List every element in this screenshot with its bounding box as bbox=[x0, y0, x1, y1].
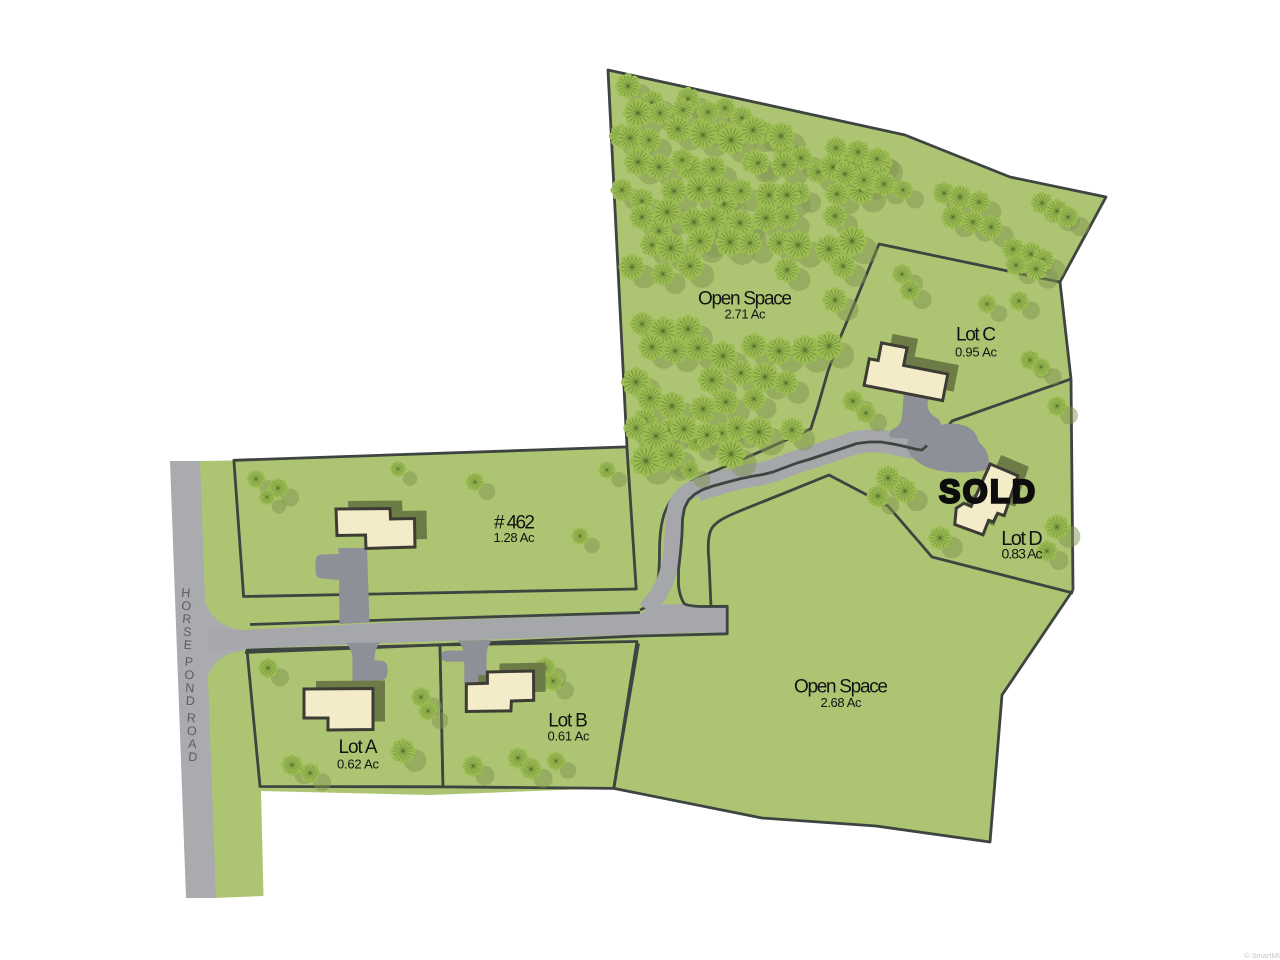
svg-text:SOLD: SOLD bbox=[939, 474, 1038, 510]
svg-text:2.71 Ac: 2.71 Ac bbox=[725, 307, 767, 322]
svg-text:2.68 Ac: 2.68 Ac bbox=[821, 695, 863, 710]
svg-text:Lot C: Lot C bbox=[956, 325, 996, 346]
svg-text:E: E bbox=[183, 638, 193, 653]
svg-text:0.83 Ac: 0.83 Ac bbox=[1002, 546, 1043, 562]
svg-text:0.61 Ac: 0.61 Ac bbox=[548, 729, 591, 744]
svg-text:© SmartMLS: © SmartMLS bbox=[1244, 951, 1280, 960]
svg-text:Lot A: Lot A bbox=[339, 737, 378, 758]
svg-text:1.28 Ac: 1.28 Ac bbox=[494, 530, 536, 545]
svg-text:0.95 Ac: 0.95 Ac bbox=[955, 345, 998, 360]
svg-text:D: D bbox=[188, 750, 198, 765]
svg-text:0.62 Ac: 0.62 Ac bbox=[337, 757, 380, 772]
svg-text:D: D bbox=[185, 694, 195, 709]
